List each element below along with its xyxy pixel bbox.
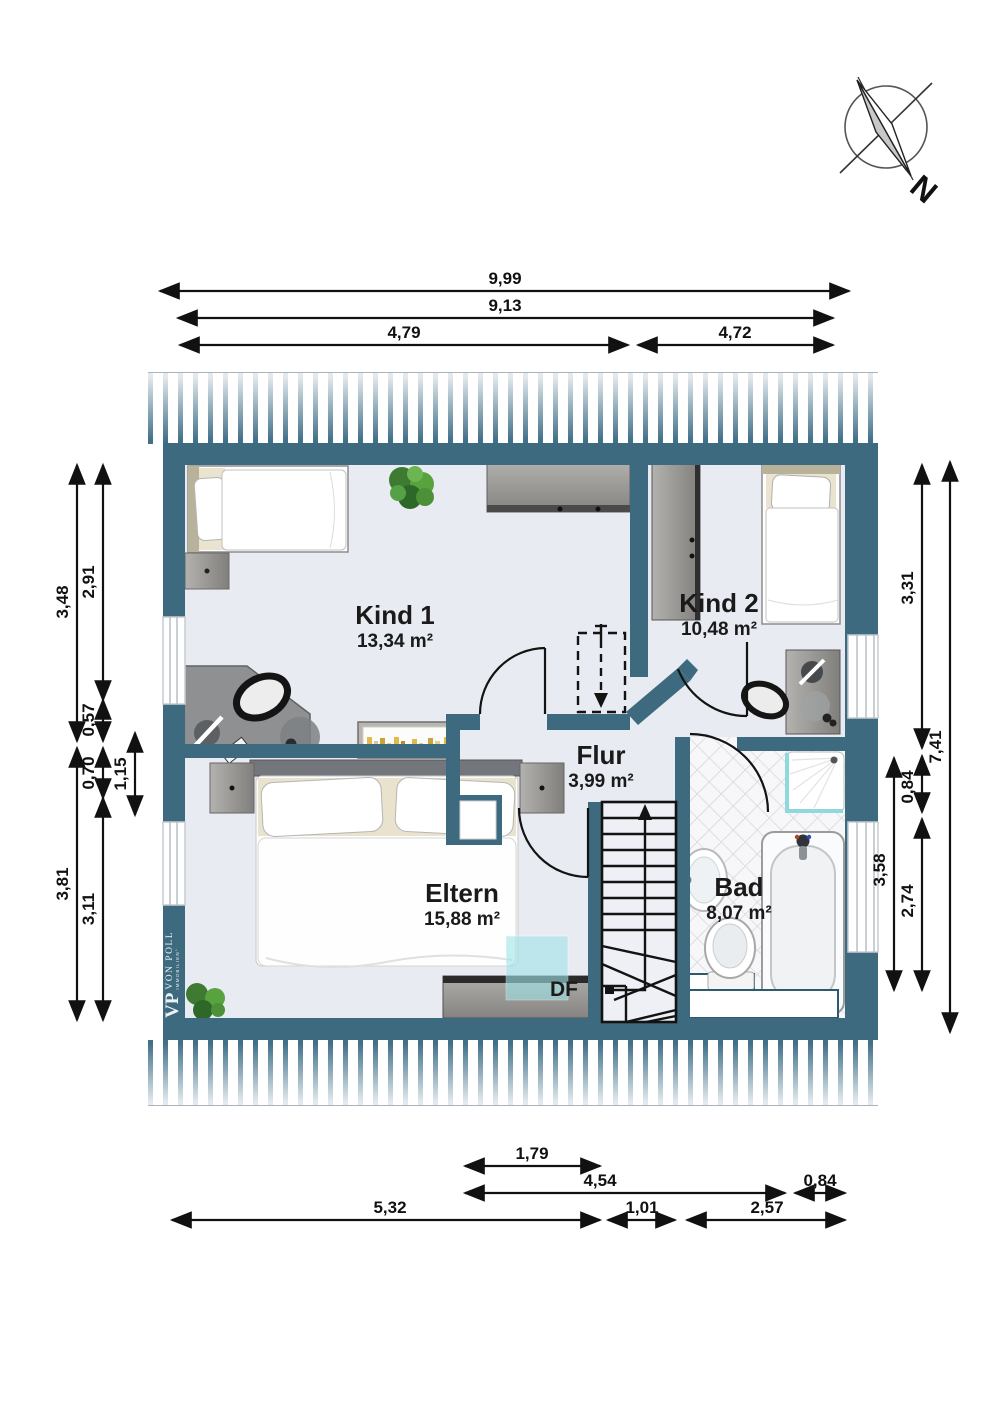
room-area: 8,07 m² [706,903,771,926]
dim-label: 3,81 [53,867,72,900]
dim-label: 9,99 [488,269,521,288]
dim-label: 1,79 [515,1144,548,1163]
dimensions-top: 9,99 9,13 4,79 4,72 [160,269,849,345]
room-name: Kind 1 [355,600,434,631]
skylight-label: DF [550,978,578,1001]
bathtub [762,832,844,1014]
logo-line1: VON POLL [166,931,176,990]
window-kind1-left [163,617,185,704]
window-eltern-left [163,822,185,905]
logo-monogram: VP [162,993,184,1018]
room-area: 10,48 m² [679,619,758,642]
dim-label: 0,84 [898,770,917,804]
room-label-eltern: Eltern 15,88 m² [424,878,500,932]
window-kind2-right [848,635,878,718]
dim-label: 9,13 [488,296,521,315]
dim-label: 0,70 [79,756,98,789]
dimensions-bottom: 1,79 4,54 0,84 5,32 1,01 2,57 [172,1144,845,1220]
dim-label: 4,54 [583,1171,617,1190]
dim-label: 4,79 [387,323,420,342]
dim-label: 3,11 [79,893,98,925]
dresser-kind1 [487,464,630,512]
dim-label: 3,31 [898,571,917,604]
compass-icon: N [840,77,944,210]
dimensions-left: 3,48 2,91 0,57 0,70 1,15 3,81 3,11 [53,465,135,1020]
dim-label: 2,57 [750,1198,783,1217]
dim-label: 3,58 [870,853,889,886]
bed-kind1 [188,466,348,552]
room-area: 3,99 m² [568,771,633,794]
room-label-kind2: Kind 2 10,48 m² [679,588,758,642]
dim-label: 0,84 [803,1171,837,1190]
bath-dormer-sill [688,990,838,1018]
room-name: Bad [706,872,771,903]
niche [460,801,496,839]
room-name: Eltern [424,878,500,909]
staircase [602,802,676,1022]
dimensions-right: 3,31 7,41 0,84 3,58 2,74 [870,462,950,1032]
nightstand-kind1 [185,553,229,589]
von-poll-logo: VP VON POLL IMMOBILIEN° [161,896,185,1018]
room-area: 13,34 m² [355,631,434,654]
floor-plan-page: DF 9,99 9,13 4,79 4,72 3,48 2,91 0,57 0,… [0,0,999,1414]
room-label-kind1: Kind 1 13,34 m² [355,600,434,654]
room-area: 15,88 m² [424,909,500,932]
dim-label: 3,48 [53,585,72,618]
dim-label: 5,32 [373,1198,406,1217]
dim-label: 4,72 [718,323,751,342]
skylight-df: DF [506,936,578,1001]
room-label-bad: Bad 8,07 m² [706,872,771,926]
dim-label: 2,74 [898,884,917,918]
dim-label: 1,15 [111,757,130,790]
floor-plan-drawing: DF 9,99 9,13 4,79 4,72 3,48 2,91 0,57 0,… [0,0,999,1414]
bed-kind2 [762,464,840,624]
toilet [705,918,755,990]
dim-label: 7,41 [926,730,945,763]
desk-kind2 [786,650,840,734]
room-label-flur: Flur 3,99 m² [568,740,633,794]
room-name: Kind 2 [679,588,758,619]
dim-label: 1,01 [625,1198,658,1217]
dim-label: 2,91 [79,565,98,598]
room-name: Flur [568,740,633,771]
logo-line2: IMMOBILIEN° [176,931,181,990]
dim-label: 0,57 [79,703,98,736]
shower [786,752,844,812]
